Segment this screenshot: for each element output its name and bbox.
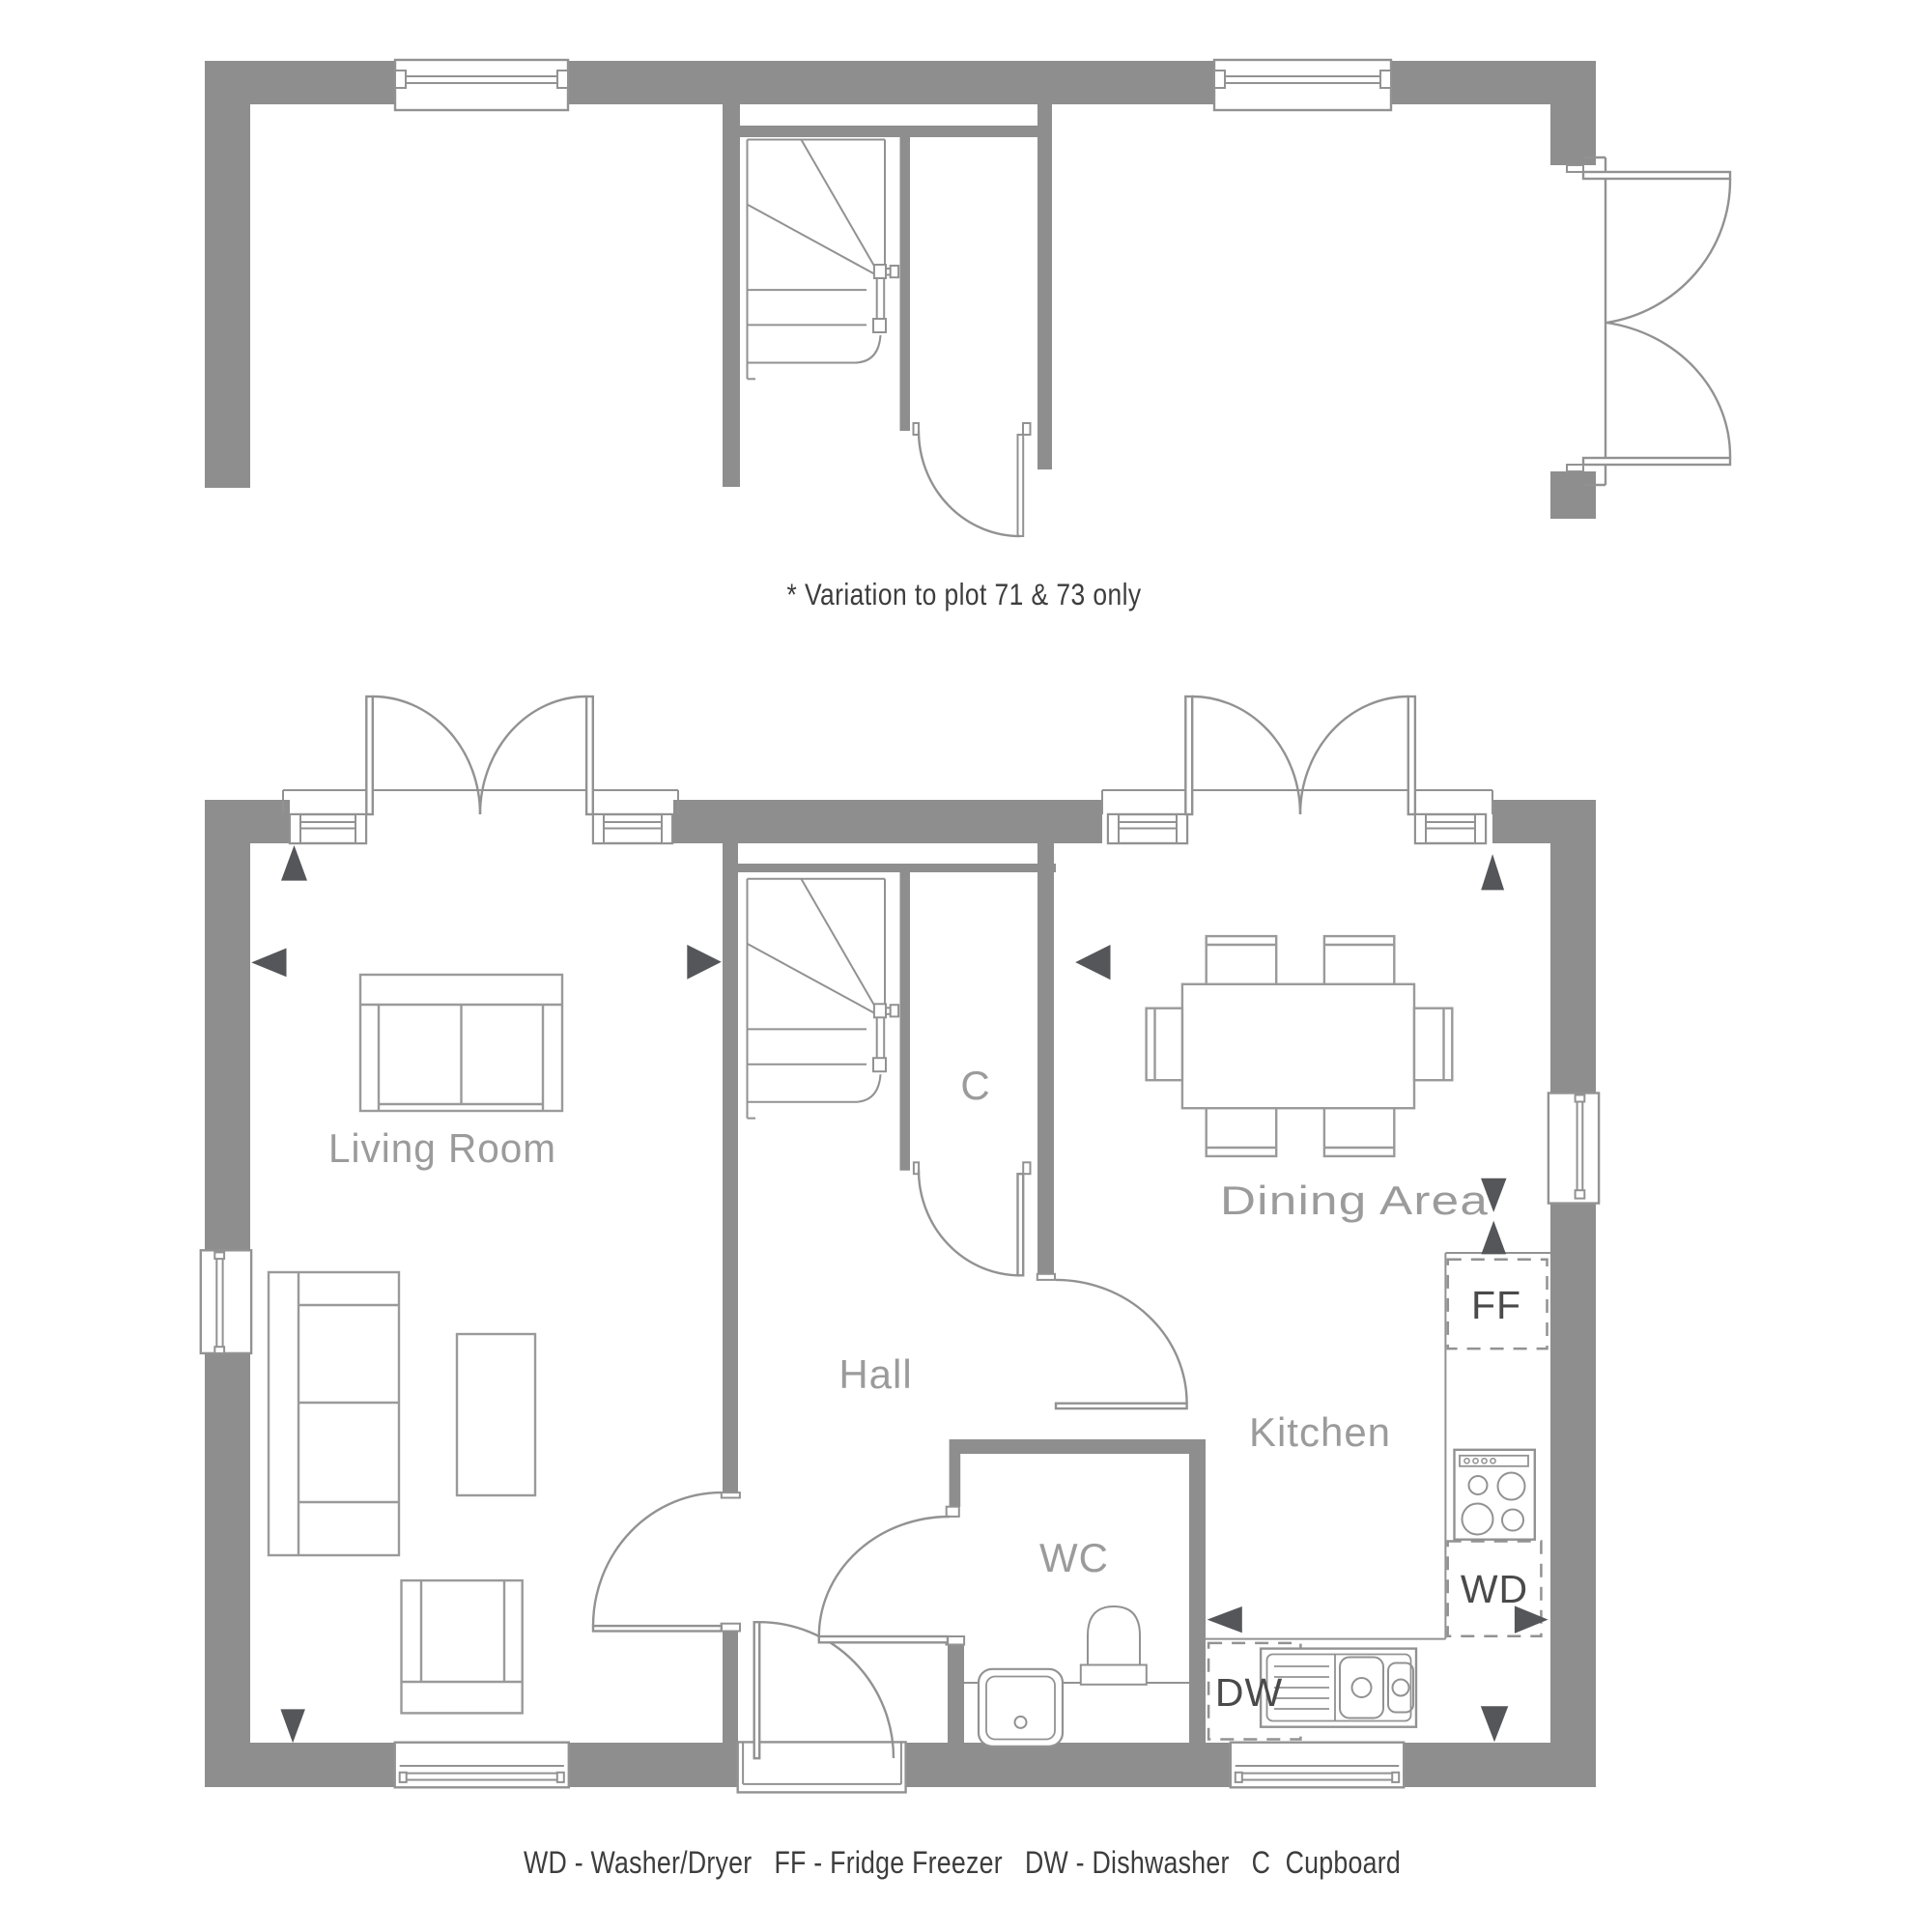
svg-text:Kitchen: Kitchen [1249,1409,1391,1455]
svg-text:Hall: Hall [838,1351,912,1397]
svg-text:WC: WC [1039,1535,1109,1580]
svg-text:C: C [960,1063,990,1108]
svg-text:FF: FF [1471,1283,1521,1327]
svg-text:DW: DW [1215,1670,1283,1715]
svg-text:WD - Washer/Dryer FF - Fridg: WD - Washer/Dryer FF - Fridge Freezer DW… [524,1845,1401,1880]
svg-text:Living Room: Living Room [328,1125,556,1171]
svg-text:Dining Area: Dining Area [1220,1178,1489,1223]
svg-text:WD: WD [1461,1567,1528,1611]
